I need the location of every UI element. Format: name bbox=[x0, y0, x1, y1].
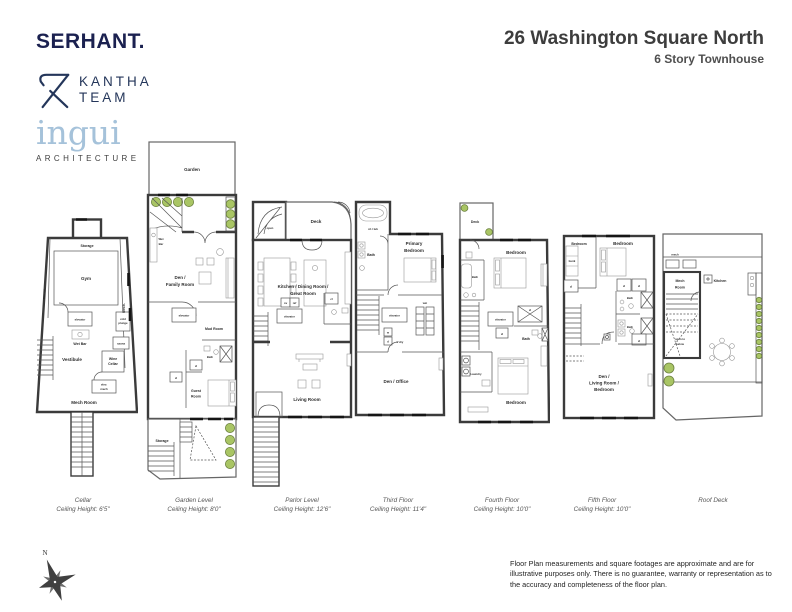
room-label-deck: Deck bbox=[311, 219, 322, 224]
floor-plan-fifth: Bedroom Bedroom bunk cl cl cl Bath Bath … bbox=[562, 232, 656, 424]
room-label-den1: Den / bbox=[598, 374, 610, 379]
room-label-den-family2: Family Room bbox=[166, 282, 194, 287]
floor-plan-sheet: SERHANT. KANTHA TEAM ingui ARCHITECTURE … bbox=[0, 0, 792, 612]
kantha-monogram-icon bbox=[36, 70, 72, 110]
room-label-mech-room: Mech bbox=[676, 279, 685, 283]
floor-caption-garden: Garden Level Ceiling Height: 8'0" bbox=[144, 497, 244, 515]
floor-plan-roof: mech Mech Room Kitchen open to below bbox=[660, 230, 765, 424]
room-label-laundry: L'dry bbox=[397, 340, 404, 344]
floor-plan-cellar: Storage Gym Storage Mech. elevator cold … bbox=[34, 218, 138, 480]
room-label-bath-upper: Bath bbox=[627, 296, 634, 300]
room-label-bath-left: Bath bbox=[472, 275, 479, 279]
room-label-shtub: sh / tub bbox=[368, 227, 378, 231]
floor-ceiling: Ceiling Height: 10'0" bbox=[552, 506, 652, 515]
floor-ceiling: Ceiling Height: 6'5" bbox=[33, 506, 133, 515]
room-label-cl1: cl bbox=[570, 285, 573, 289]
floor-caption-cellar: Cellar Ceiling Height: 6'5" bbox=[33, 497, 133, 515]
room-label-wine2: Cellar bbox=[108, 362, 118, 366]
room-label-wet-bar: Wet Bar bbox=[73, 342, 87, 346]
floor-plan-third: sh / tub Bath Primary Bedroom wic elevat… bbox=[354, 200, 446, 422]
room-label-storage: Storage bbox=[155, 439, 168, 443]
kantha-line2: TEAM bbox=[79, 90, 152, 106]
room-label-elevator: elevator bbox=[389, 314, 401, 318]
room-label-elevator: elevator bbox=[179, 314, 191, 318]
floor-caption-fourth: Fourth Floor Ceiling Height: 10'0" bbox=[452, 497, 552, 515]
room-label-den3: Bedroom bbox=[594, 387, 614, 392]
page-subtitle: 6 Story Townhouse bbox=[504, 52, 764, 66]
room-label-bedroom-left: Bedroom bbox=[571, 242, 586, 246]
room-label-cl2: cl bbox=[623, 284, 626, 288]
floor-ceiling: Ceiling Height: 10'0" bbox=[452, 506, 552, 515]
room-label-open-below: open to bbox=[675, 337, 685, 341]
room-label-guest: Guest bbox=[191, 389, 202, 393]
room-label-vestibule: Vestibule bbox=[62, 357, 82, 362]
room-label-den2: Living Room / bbox=[589, 381, 619, 386]
floor-ceiling: Ceiling Height: 11'4" bbox=[348, 506, 448, 515]
room-label-mech-side: Mech. bbox=[122, 303, 126, 313]
kantha-line1: KANTHA bbox=[79, 74, 152, 90]
floor-name: Fourth Floor bbox=[452, 497, 552, 506]
floor-ceiling: Ceiling Height: 8'0" bbox=[144, 506, 244, 515]
room-label-cold-plunge2: plunge bbox=[118, 321, 128, 325]
floor-name: Roof Deck bbox=[663, 497, 763, 506]
floor-caption-roof: Roof Deck bbox=[663, 497, 763, 506]
room-label-ref: ref bbox=[293, 301, 297, 305]
room-label-kitchen: Kitchen bbox=[714, 279, 727, 283]
room-label-cl2: cl bbox=[175, 376, 178, 380]
room-label-cl2: cl bbox=[501, 332, 504, 336]
floor-plan-parlor: open Deck Kitchen / Dining Room / Great … bbox=[250, 196, 354, 488]
room-label-kitchen: Kitchen / Dining Room / bbox=[278, 284, 329, 289]
room-label-open-below2: below bbox=[676, 342, 685, 346]
room-label-storage-top: Storage bbox=[80, 244, 93, 248]
ingui-logo: ingui ARCHITECTURE bbox=[36, 116, 139, 163]
room-label-living: Living Room bbox=[293, 397, 320, 402]
floor-name: Fifth Floor bbox=[552, 497, 652, 506]
room-label-mud-room: Mud Room bbox=[205, 327, 223, 331]
floor-caption-parlor: Parlor Level Ceiling Height: 12'6" bbox=[252, 497, 352, 515]
room-label-storage-side: Storage bbox=[42, 288, 46, 299]
room-label-den-family: Den / bbox=[174, 275, 186, 280]
room-label-primary: Primary bbox=[406, 241, 423, 246]
disclaimer-text: Floor Plan measurements and square foota… bbox=[510, 559, 782, 590]
room-label-dryer: d bbox=[387, 340, 389, 344]
floor-plan-garden: Garden Wet Bar Den / Family Room elevato… bbox=[146, 140, 238, 480]
floor-name: Third Floor bbox=[348, 497, 448, 506]
serhant-logo: SERHANT. bbox=[36, 30, 145, 54]
room-label-laundry: Laundry bbox=[470, 372, 481, 376]
floor-caption-third: Third Floor Ceiling Height: 11'4" bbox=[348, 497, 448, 515]
room-label-bath-right: Bath bbox=[522, 337, 530, 341]
room-label-kitchen2: Great Room bbox=[290, 291, 316, 296]
ingui-subtitle: ARCHITECTURE bbox=[36, 154, 139, 163]
room-label-ov: ov bbox=[284, 301, 288, 305]
compass-rose-icon: N bbox=[24, 546, 86, 608]
floor-plan-fourth: Deck Bedroom Bath elevator cl cl Bath La… bbox=[458, 200, 550, 426]
compass-north-label: N bbox=[42, 549, 47, 557]
ingui-wordmark: ingui bbox=[36, 116, 139, 151]
kantha-team-logo: KANTHA TEAM bbox=[36, 70, 152, 110]
floor-name: Garden Level bbox=[144, 497, 244, 506]
room-label-bath: Bath bbox=[367, 253, 375, 257]
room-label-bedroom-bottom: Bedroom bbox=[506, 400, 526, 405]
room-label-mech: mech bbox=[671, 253, 679, 257]
room-label-open: open bbox=[267, 226, 274, 230]
floor-name: Cellar bbox=[33, 497, 133, 506]
room-label-bedroom-right: Bedroom bbox=[613, 241, 633, 246]
room-label-primary2: Bedroom bbox=[404, 248, 424, 253]
room-label-elev-mech2: mech bbox=[100, 387, 108, 391]
room-label-elev-mech: elev. bbox=[101, 383, 107, 387]
room-label-wet-bar: Wet bbox=[158, 237, 163, 241]
room-label-guest2: Room bbox=[191, 395, 201, 399]
room-label-sauna: sauna bbox=[117, 342, 126, 346]
page-title: 26 Washington Square North bbox=[504, 28, 764, 50]
room-label-cl3: cl bbox=[638, 284, 641, 288]
room-label-den-office: Den / Office bbox=[383, 379, 409, 384]
room-label-wine: Wine bbox=[109, 357, 117, 361]
title-block: 26 Washington Square North 6 Story Townh… bbox=[504, 28, 764, 66]
room-label-deck: Deck bbox=[471, 220, 479, 224]
room-label-mech-room: Mech Room bbox=[71, 400, 97, 405]
room-label-elevator: elevator bbox=[75, 318, 87, 322]
room-label-cl1: cl bbox=[529, 308, 532, 312]
room-label-bath-lower: Bath bbox=[627, 325, 634, 329]
room-label-bath: Bath bbox=[207, 355, 214, 359]
room-label-wic: wic bbox=[422, 301, 428, 305]
room-label-mech-room2: Room bbox=[675, 286, 685, 290]
room-label-elevator: elevator bbox=[284, 315, 296, 319]
room-label-gym: Gym bbox=[81, 276, 91, 281]
room-label-bedroom-top: Bedroom bbox=[506, 250, 526, 255]
room-label-cl1: cl bbox=[195, 364, 198, 368]
room-label-bunk: bunk bbox=[569, 259, 576, 263]
room-label-cl4: cl bbox=[638, 339, 641, 343]
floor-ceiling: Ceiling Height: 12'6" bbox=[252, 506, 352, 515]
room-label-cl: cl bbox=[330, 297, 333, 301]
floor-name: Parlor Level bbox=[252, 497, 352, 506]
room-label-garden: Garden bbox=[184, 167, 200, 172]
floor-caption-fifth: Fifth Floor Ceiling Height: 10'0" bbox=[552, 497, 652, 515]
room-label-elevator: elevator bbox=[495, 318, 507, 322]
